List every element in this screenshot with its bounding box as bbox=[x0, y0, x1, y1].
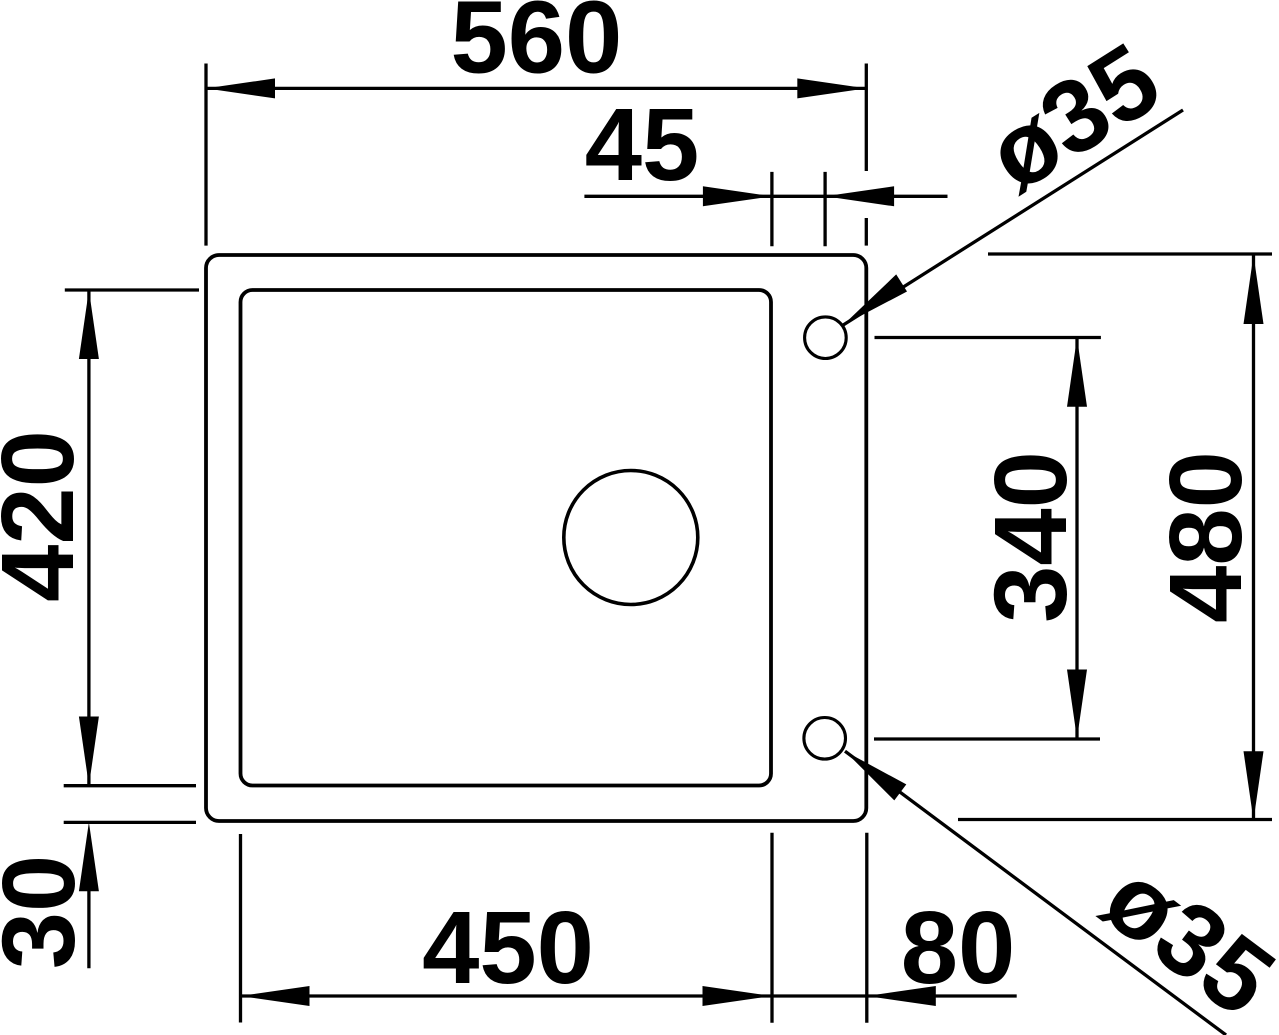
svg-text:560: 560 bbox=[450, 0, 622, 95]
svg-text:45: 45 bbox=[585, 87, 700, 202]
svg-text:340: 340 bbox=[973, 451, 1088, 623]
svg-text:450: 450 bbox=[422, 890, 594, 1005]
svg-text:80: 80 bbox=[901, 890, 1016, 1005]
svg-text:420: 420 bbox=[0, 430, 95, 602]
svg-text:480: 480 bbox=[1148, 451, 1263, 623]
svg-text:30: 30 bbox=[0, 855, 96, 970]
